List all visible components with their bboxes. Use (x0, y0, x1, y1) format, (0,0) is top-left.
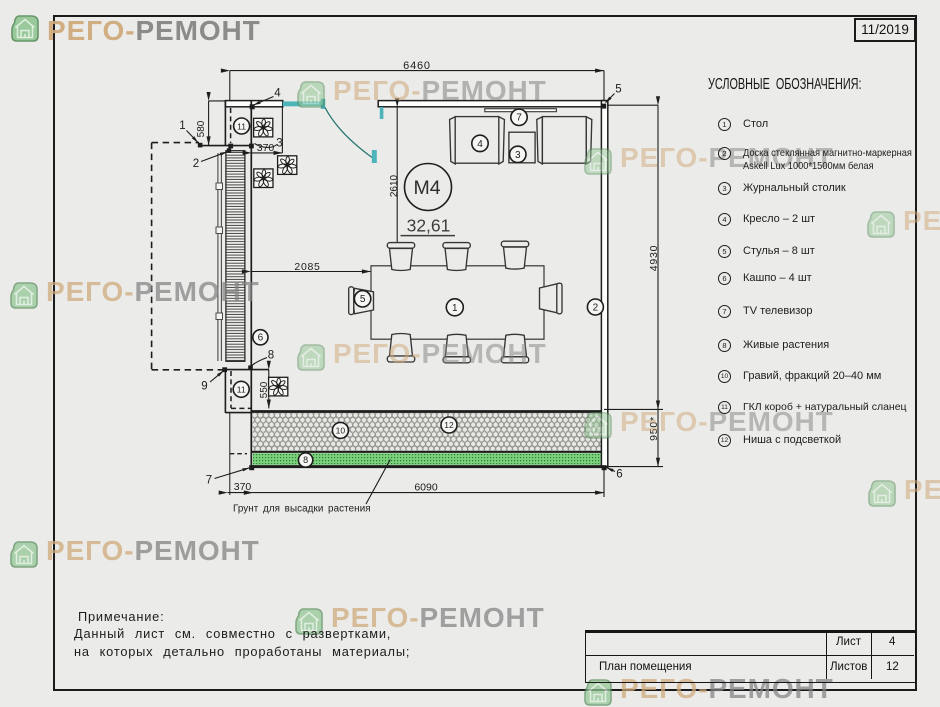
svg-text:8: 8 (268, 350, 274, 362)
svg-text:5: 5 (360, 294, 366, 305)
svg-text:2085: 2085 (294, 261, 320, 273)
svg-text:7: 7 (516, 113, 522, 124)
svg-text:12: 12 (444, 420, 454, 430)
svg-text:1: 1 (179, 120, 185, 132)
svg-text:580: 580 (196, 120, 207, 137)
svg-text:11: 11 (237, 385, 246, 395)
svg-text:6: 6 (616, 469, 622, 481)
svg-text:5: 5 (615, 84, 621, 96)
svg-text:6090: 6090 (414, 482, 438, 494)
svg-text:11: 11 (237, 121, 246, 131)
svg-text:2: 2 (193, 158, 199, 170)
svg-text:2610: 2610 (389, 174, 400, 197)
svg-text:7: 7 (206, 475, 212, 487)
svg-text:370: 370 (257, 142, 275, 154)
svg-text:3: 3 (276, 138, 282, 150)
svg-text:9: 9 (201, 381, 207, 393)
svg-text:32,61: 32,61 (407, 216, 451, 236)
svg-text:М4: М4 (413, 177, 440, 199)
svg-text:4: 4 (477, 139, 483, 150)
svg-text:1: 1 (452, 303, 458, 314)
svg-text:3: 3 (515, 150, 521, 161)
svg-text:4930: 4930 (648, 245, 660, 272)
svg-text:Грунт для высадки растения: Грунт для высадки растения (233, 504, 371, 515)
svg-text:6: 6 (258, 333, 264, 344)
svg-text:370: 370 (234, 481, 252, 493)
svg-text:6460: 6460 (403, 60, 431, 72)
svg-text:8: 8 (303, 455, 308, 465)
svg-text:550: 550 (259, 381, 270, 398)
svg-text:4: 4 (274, 88, 281, 100)
svg-text:10: 10 (336, 426, 346, 436)
svg-text:2: 2 (593, 302, 599, 313)
